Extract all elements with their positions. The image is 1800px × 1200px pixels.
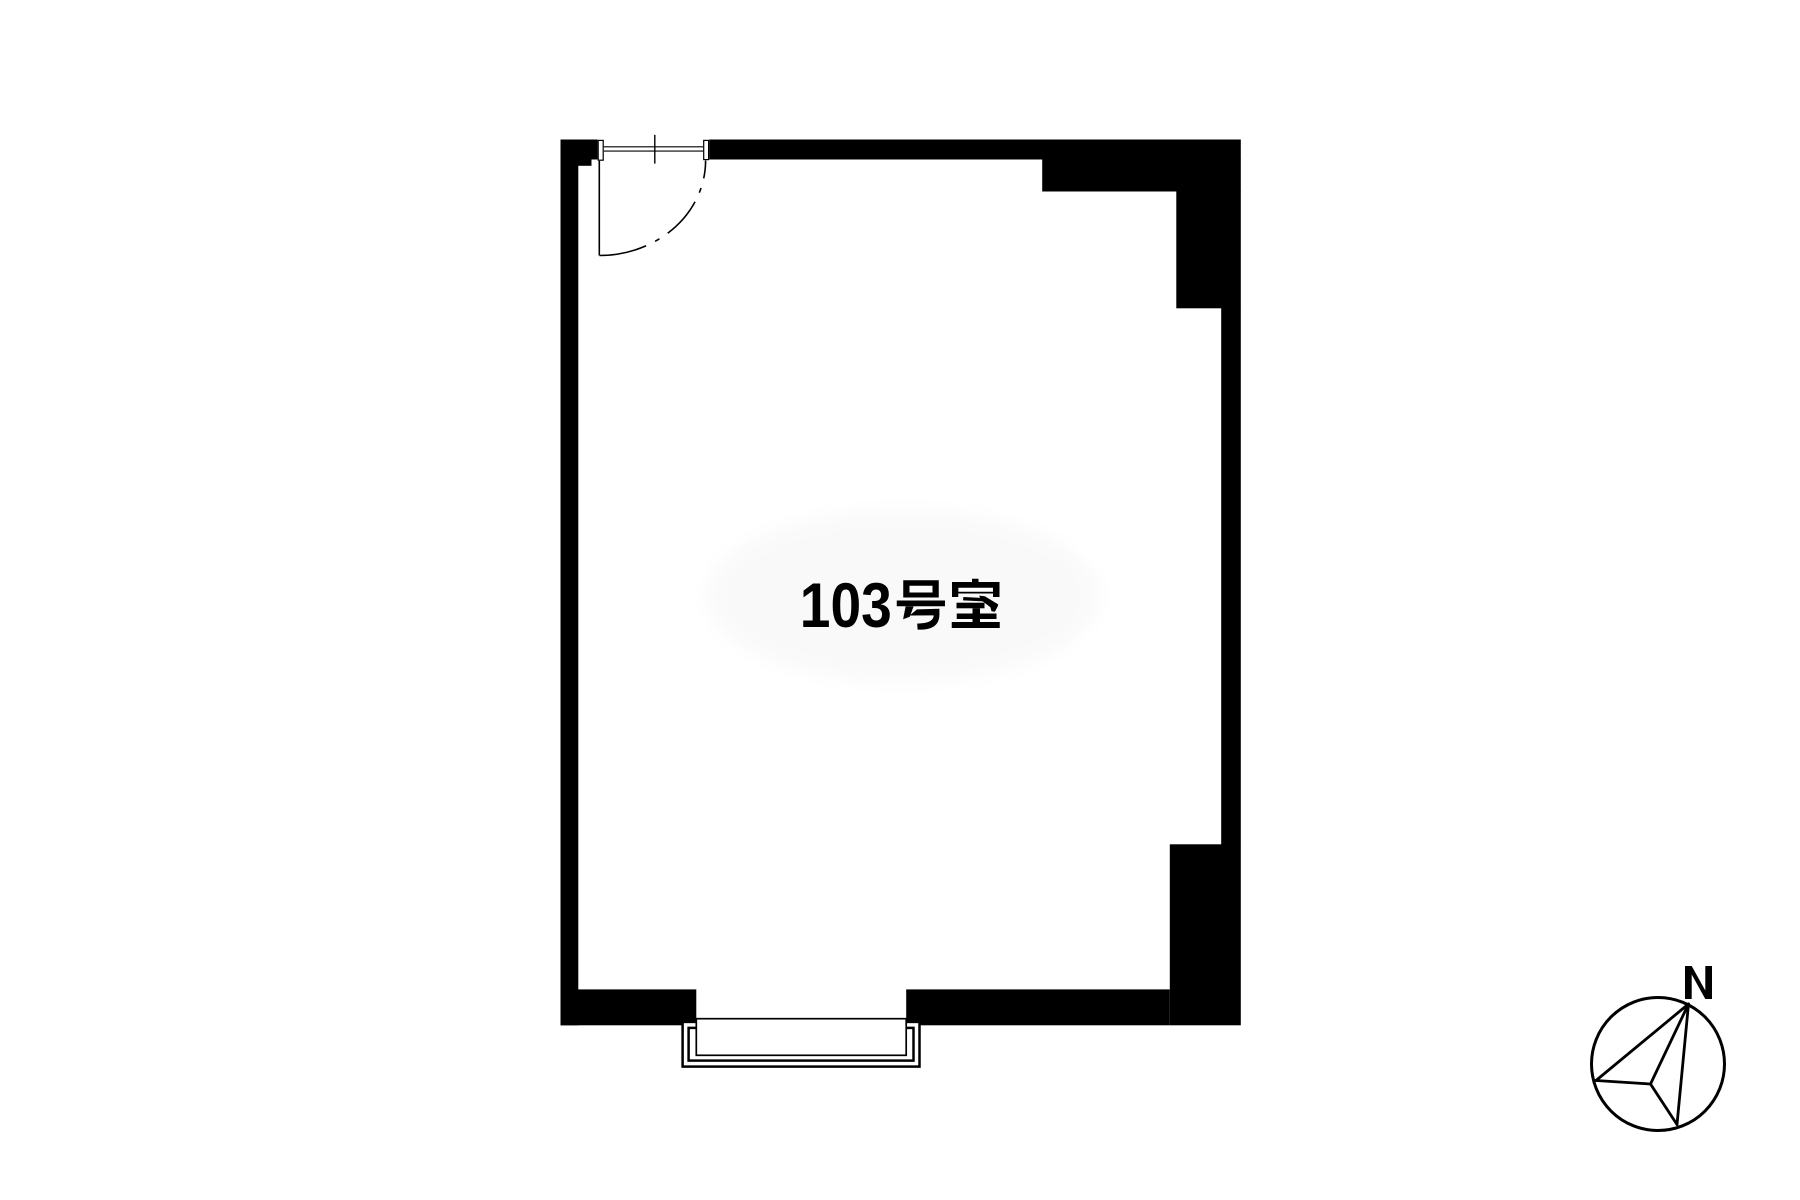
svg-text:103: 103 bbox=[800, 571, 892, 641]
